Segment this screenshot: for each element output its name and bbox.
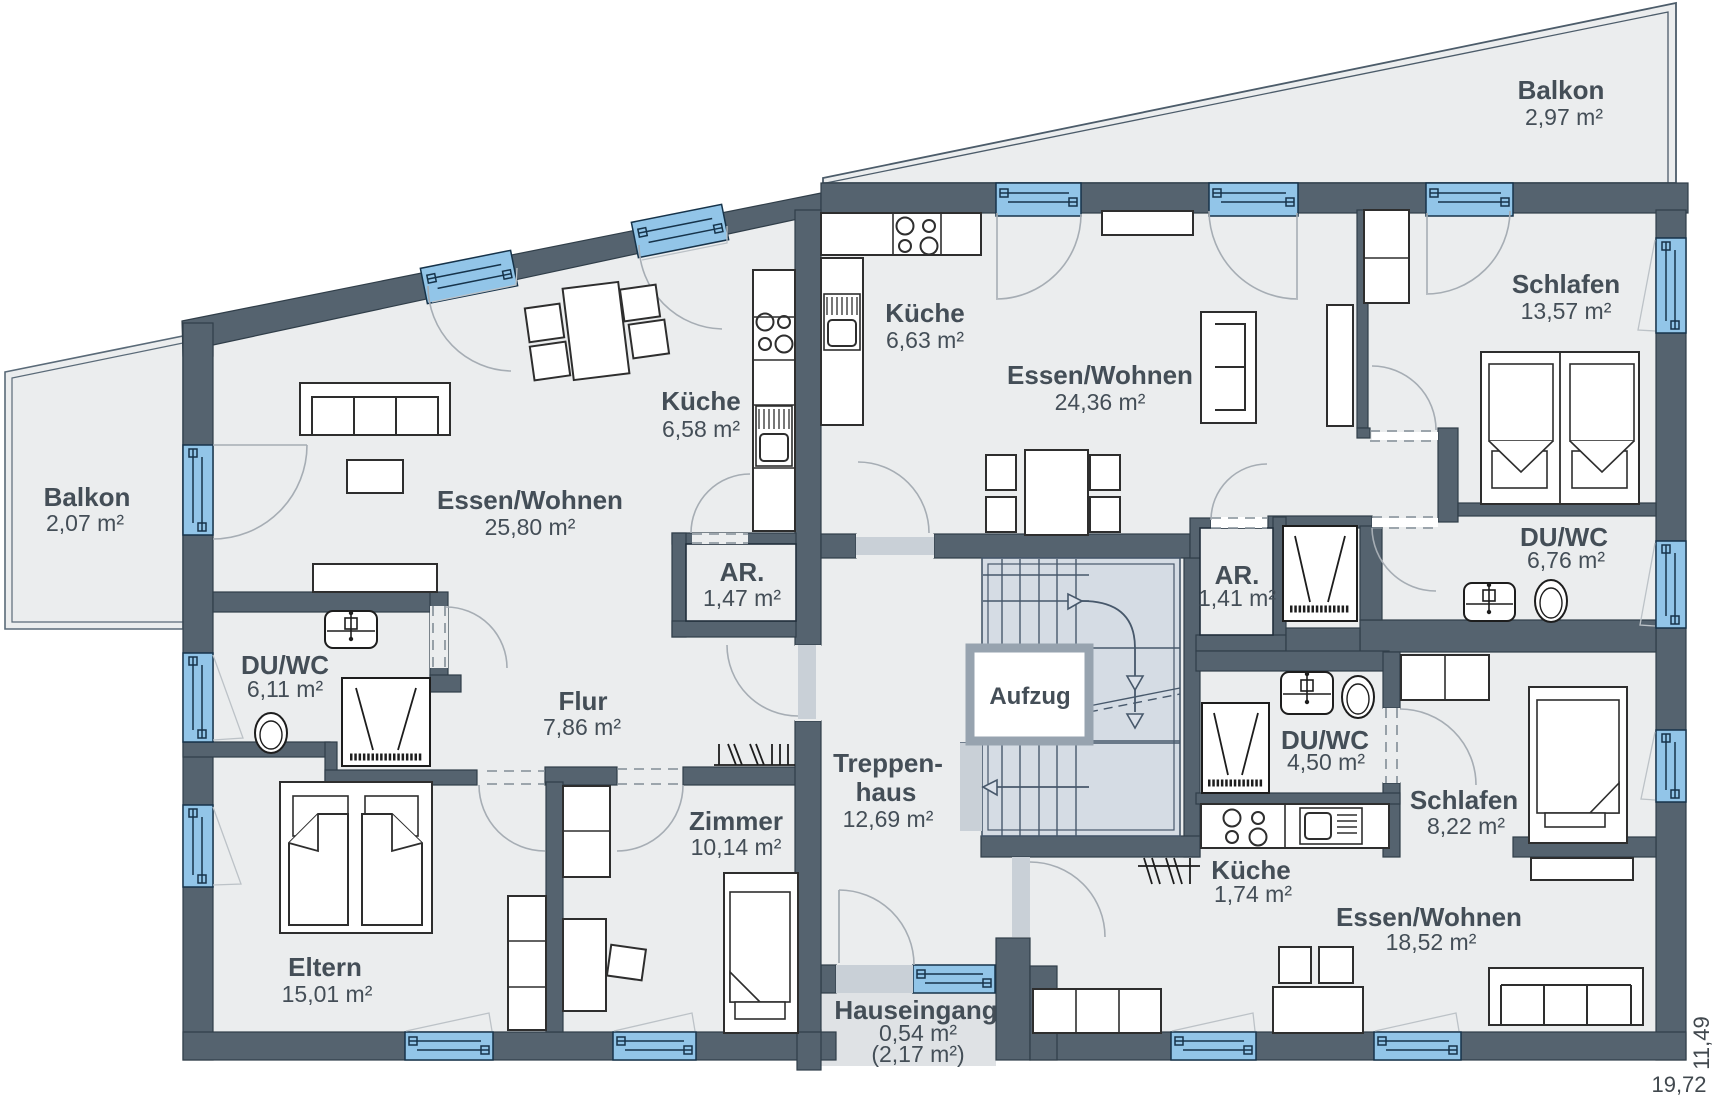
svg-text:6,11 m²: 6,11 m² — [247, 676, 324, 702]
svg-text:Küche: Küche — [661, 386, 740, 416]
svg-text:7,86 m²: 7,86 m² — [543, 714, 621, 740]
svg-text:15,01 m²: 15,01 m² — [282, 981, 373, 1007]
svg-text:Schlafen: Schlafen — [1410, 785, 1518, 815]
svg-text:10,14 m²: 10,14 m² — [691, 834, 782, 860]
svg-text:1,41 m²: 1,41 m² — [1198, 585, 1276, 611]
svg-text:1,47 m²: 1,47 m² — [703, 585, 781, 611]
svg-text:Zimmer: Zimmer — [689, 806, 783, 836]
svg-text:1,74 m²: 1,74 m² — [1214, 881, 1292, 907]
svg-text:2,07 m²: 2,07 m² — [46, 510, 124, 536]
svg-text:haus: haus — [856, 777, 917, 807]
svg-text:6,76 m²: 6,76 m² — [1527, 547, 1605, 573]
svg-text:Eltern: Eltern — [288, 952, 362, 982]
svg-text:Flur: Flur — [558, 686, 607, 716]
svg-text:2,97 m²: 2,97 m² — [1525, 104, 1603, 130]
svg-text:18,52 m²: 18,52 m² — [1386, 929, 1477, 955]
svg-text:6,58 m²: 6,58 m² — [662, 416, 740, 442]
svg-text:AR.: AR. — [720, 557, 765, 587]
svg-text:(2,17 m²): (2,17 m²) — [871, 1041, 964, 1067]
svg-text:Essen/Wohnen: Essen/Wohnen — [437, 485, 623, 515]
svg-text:Schlafen: Schlafen — [1512, 269, 1620, 299]
svg-text:Aufzug: Aufzug — [989, 683, 1070, 710]
svg-text:12,69 m²: 12,69 m² — [843, 806, 934, 832]
svg-text:Essen/Wohnen: Essen/Wohnen — [1336, 902, 1522, 932]
svg-text:24,36 m²: 24,36 m² — [1055, 389, 1146, 415]
svg-text:11,49: 11,49 — [1689, 1016, 1714, 1069]
svg-text:19,72: 19,72 — [1651, 1072, 1706, 1096]
svg-text:Küche: Küche — [885, 298, 964, 328]
svg-text:Balkon: Balkon — [1518, 75, 1605, 105]
svg-text:4,50 m²: 4,50 m² — [1287, 749, 1365, 775]
svg-text:6,63 m²: 6,63 m² — [886, 327, 964, 353]
svg-text:25,80 m²: 25,80 m² — [485, 514, 576, 540]
svg-text:8,22 m²: 8,22 m² — [1427, 813, 1505, 839]
svg-text:Balkon: Balkon — [44, 482, 131, 512]
svg-text:Essen/Wohnen: Essen/Wohnen — [1007, 360, 1193, 390]
svg-text:Treppen-: Treppen- — [833, 748, 943, 778]
svg-text:13,57 m²: 13,57 m² — [1521, 298, 1612, 324]
